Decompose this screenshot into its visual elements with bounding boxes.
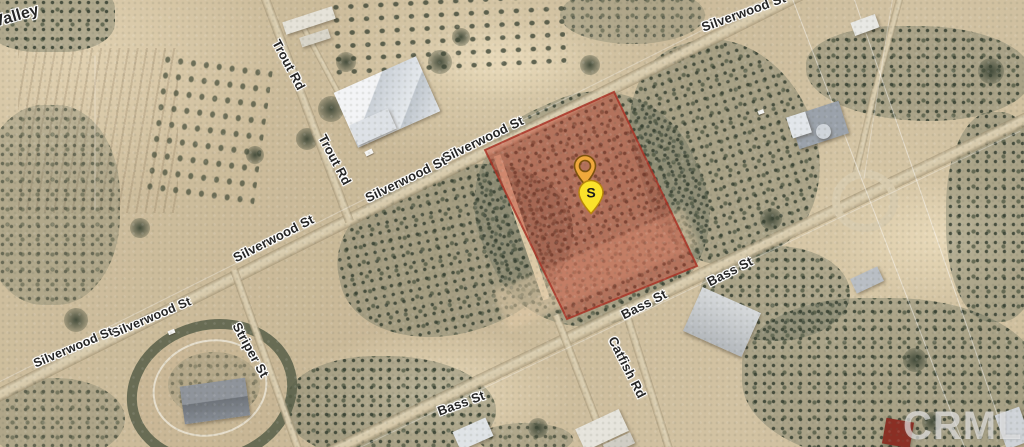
water-tank (816, 124, 831, 139)
tree (246, 146, 264, 164)
listing-price-pin-icon[interactable]: S (577, 179, 605, 215)
crmls-watermark: CRMLS (903, 404, 1024, 447)
orchard-rows (143, 51, 274, 207)
pin-label: S (586, 185, 595, 201)
tree (978, 58, 1004, 84)
tree (130, 218, 150, 238)
tree (336, 52, 356, 72)
tree (452, 28, 470, 46)
tree (760, 208, 782, 230)
fence-line (95, 56, 96, 211)
tree (64, 308, 88, 332)
tree (428, 50, 452, 74)
tree (580, 55, 600, 75)
vegetation-patch (0, 105, 120, 305)
tree (903, 348, 927, 372)
cul-de-sac-loop (832, 170, 898, 232)
tree (528, 418, 548, 438)
satellite-map[interactable]: Valley Silverwood St Silverwood St Silve… (0, 0, 1024, 447)
